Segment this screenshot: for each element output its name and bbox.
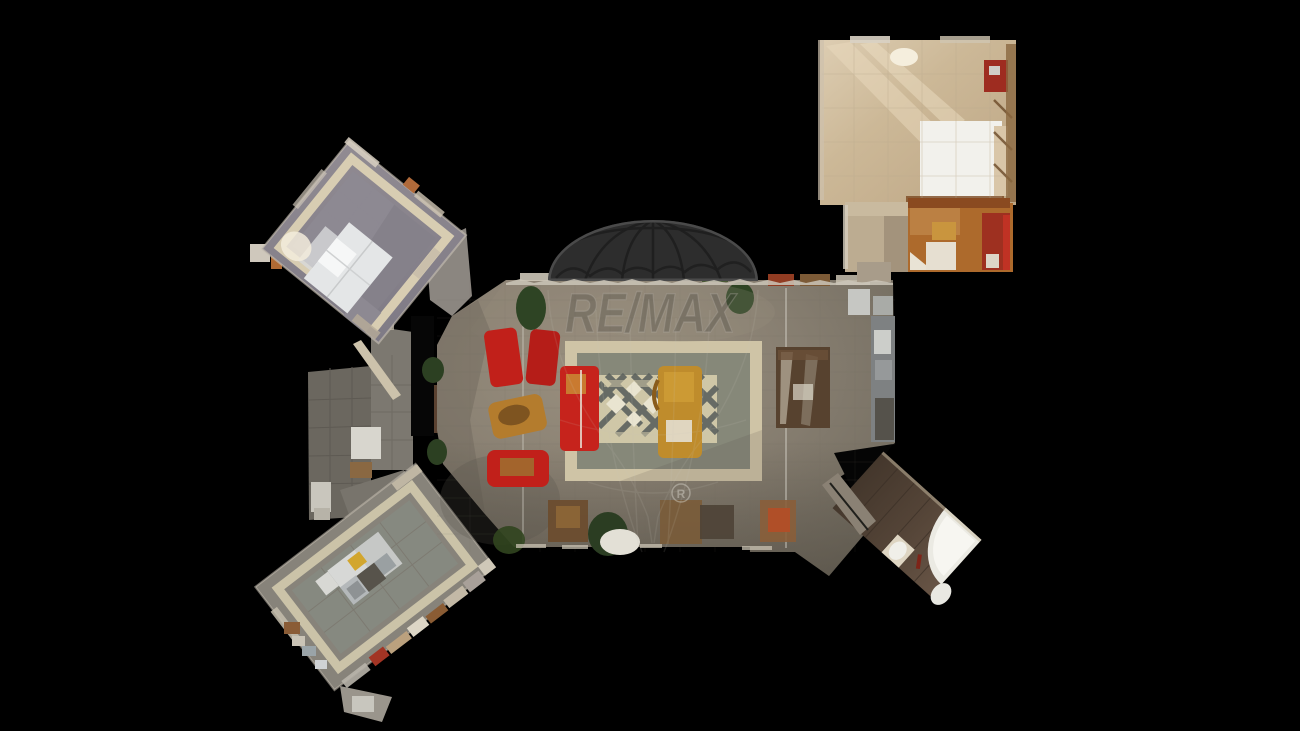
svg-text:R: R — [677, 487, 686, 501]
svg-text:RE/MAX: RE/MAX — [565, 281, 738, 344]
